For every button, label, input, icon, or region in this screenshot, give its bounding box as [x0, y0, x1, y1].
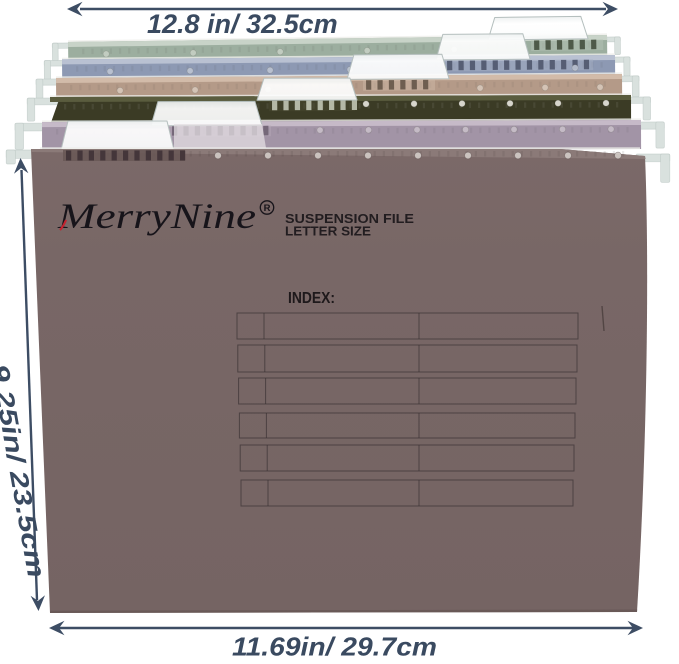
svg-text:MerryNine: MerryNine — [57, 196, 256, 236]
svg-text:R: R — [264, 203, 271, 214]
svg-text:11.69in/ 29.7cm: 11.69in/ 29.7cm — [232, 632, 437, 660]
svg-text:12.8 in/ 32.5cm: 12.8 in/ 32.5cm — [147, 9, 338, 39]
svg-text:INDEX:: INDEX: — [288, 290, 335, 307]
svg-text:LETTER SIZE: LETTER SIZE — [285, 224, 371, 239]
